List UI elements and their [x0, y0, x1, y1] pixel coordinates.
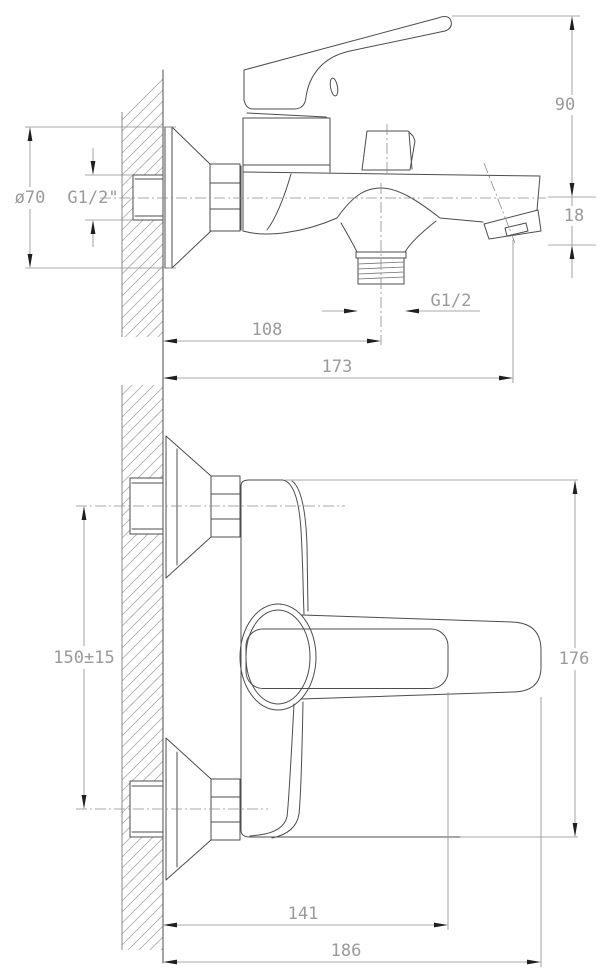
plan-body	[240, 480, 541, 838]
dim-aerator-drop: 18	[548, 197, 596, 278]
dim-label-aerator-drop: 18	[564, 206, 584, 226]
plan-handle-lever-face	[246, 629, 448, 689]
handle-logo-oval	[329, 78, 339, 97]
dim-label-handle-height: 90	[555, 95, 575, 115]
plan-handle-outer	[301, 615, 541, 699]
dim-spout-reach: 173	[163, 240, 513, 383]
technical-drawing-page: ø70 G1/2" 90 18 G1/2	[0, 0, 604, 980]
dim-label-inlet-spacing: 150±15	[53, 648, 114, 668]
plan-dome-outer	[240, 604, 316, 710]
side-handle-lever	[244, 17, 451, 121]
side-hex-nut	[210, 164, 241, 231]
side-flange-cone	[165, 127, 211, 268]
dim-outlet-thread: G1/2	[322, 291, 480, 313]
side-aerator	[484, 210, 541, 239]
plan-dome-inner	[246, 610, 310, 704]
side-diverter-knob	[362, 131, 415, 170]
side-inlet-stub	[133, 175, 163, 220]
dim-label-lever-reach: 141	[288, 904, 319, 924]
dim-label-overall-reach: 186	[331, 941, 362, 961]
dim-label-spout-reach: 173	[322, 357, 353, 377]
dim-body-length: 176	[285, 480, 591, 837]
dim-label-flange-diameter: ø70	[15, 188, 46, 208]
dim-label-outlet-thread: G1/2	[431, 291, 472, 311]
technical-drawing: ø70 G1/2" 90 18 G1/2	[0, 0, 604, 980]
side-view	[100, 17, 546, 345]
dim-label-inlet-thread: G1/2"	[67, 188, 118, 208]
dim-inlet-spacing: 150±15	[51, 506, 117, 809]
dim-handle-height: 90	[452, 16, 596, 197]
side-cartridge-body	[243, 118, 330, 172]
dim-label-body-length: 176	[559, 649, 590, 669]
dim-label-shower-outlet-offset: 108	[252, 320, 283, 340]
side-shower-outlet	[341, 221, 436, 284]
dim-shower-outlet-offset: 108	[163, 320, 381, 343]
